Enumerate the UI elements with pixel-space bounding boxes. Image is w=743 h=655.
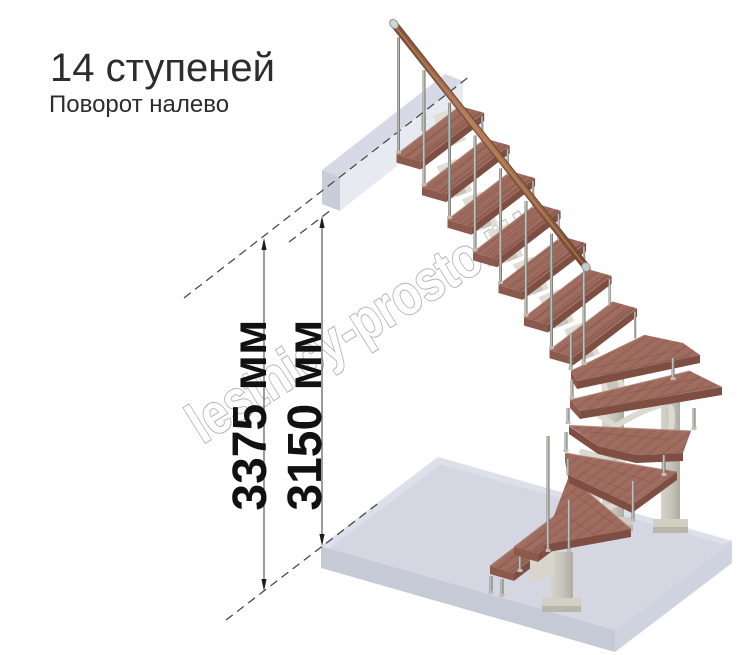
svg-text:3375 мм: 3375 мм: [224, 319, 277, 510]
svg-text:Поворот налево: Поворот налево: [49, 91, 229, 118]
svg-text:3150 мм: 3150 мм: [279, 319, 332, 510]
svg-text:14 ступеней: 14 ступеней: [50, 46, 275, 90]
